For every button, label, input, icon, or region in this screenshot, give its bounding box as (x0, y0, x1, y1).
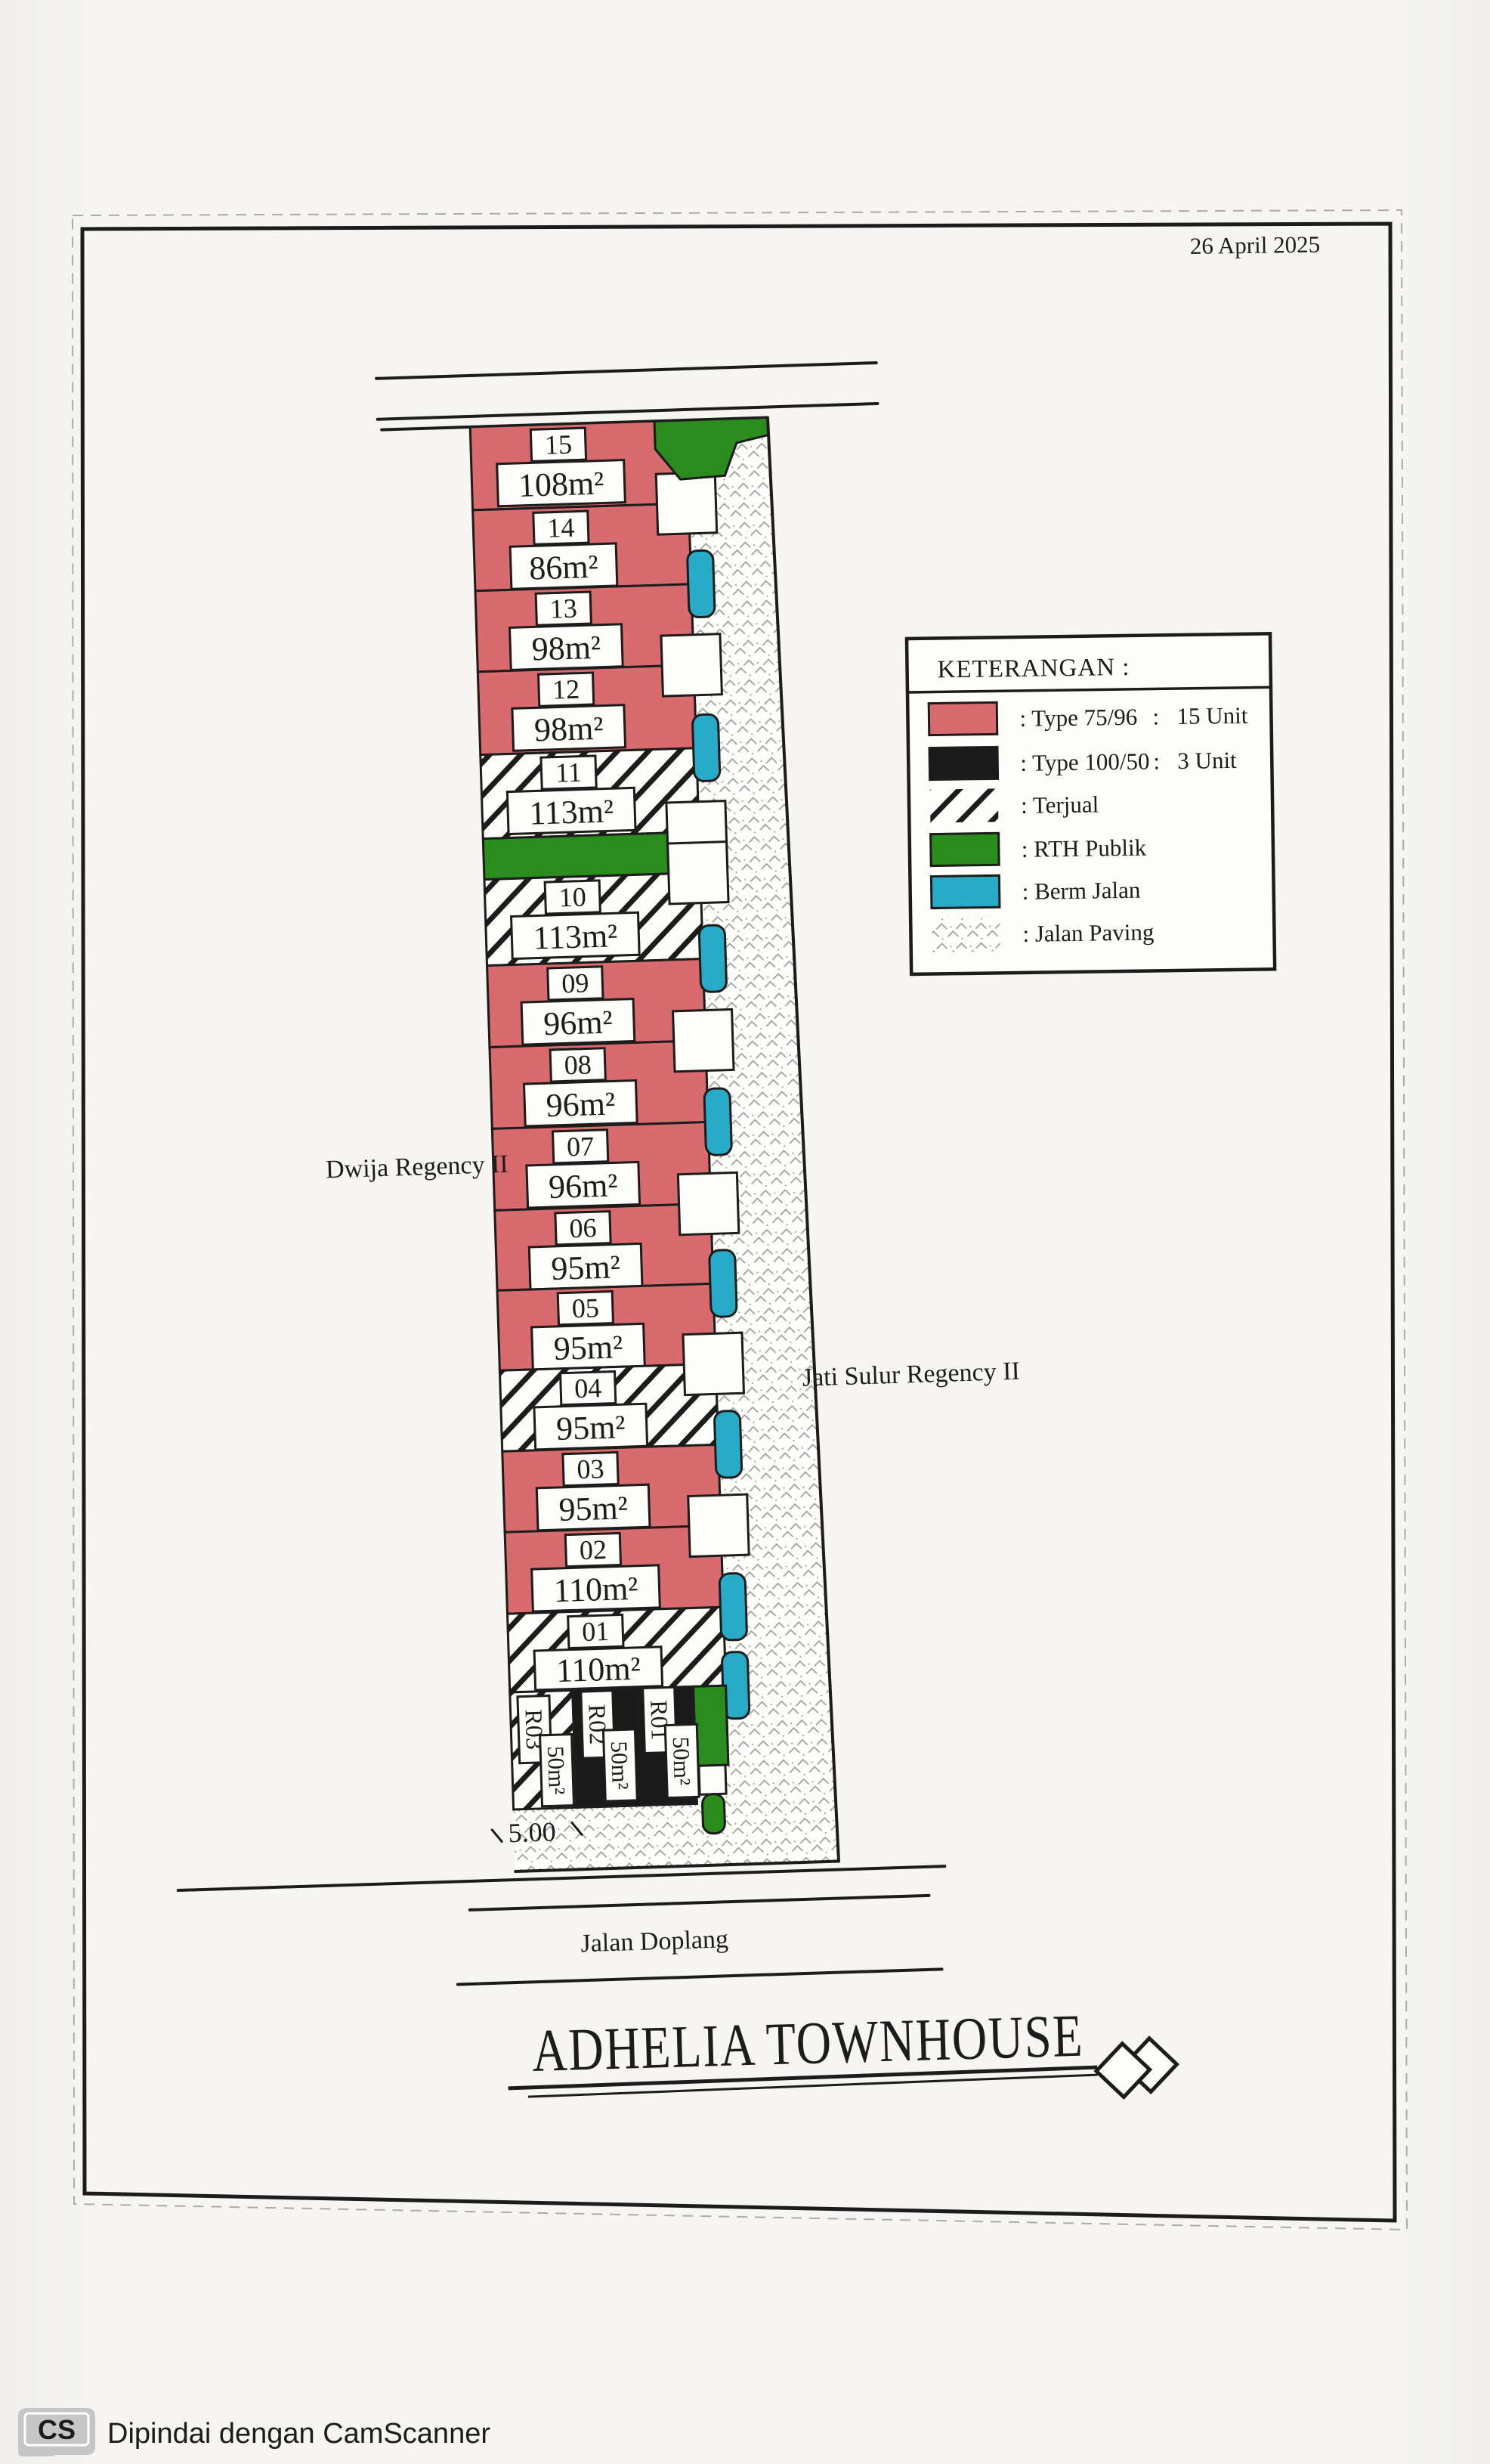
lot-area: 110m² (555, 1650, 641, 1689)
lot-area: 86m² (529, 548, 599, 587)
road-top-line-1 (376, 363, 876, 379)
berm-tab (719, 1573, 747, 1640)
driveway-gap (688, 1494, 749, 1556)
berm-tab (704, 1088, 732, 1156)
neighbor-label-right: Jati Sulur Regency II (802, 1357, 1020, 1392)
lot-number: 03 (577, 1453, 604, 1484)
cs-badge-tab (18, 2447, 56, 2456)
dimension-tick (491, 1829, 502, 1843)
legend-swatch-terjual (930, 788, 999, 822)
legend-row-berm-jalan: : Berm Jalan (931, 874, 1141, 909)
road-bottom-line-2 (470, 1896, 929, 1910)
berm-tab (699, 925, 727, 992)
lot-area: 110m² (553, 1570, 638, 1609)
neighbor-label-left: Dwija Regency II (326, 1150, 509, 1184)
driveway-gap (661, 634, 722, 696)
legend-label: : RTH Publik (1022, 834, 1147, 862)
lot-area: 96m² (543, 1003, 614, 1042)
site-plan: 15 108m² 14 86m² 13 98m² 12 98m² (131, 359, 1038, 1993)
dimension-label: 5.00 (508, 1816, 556, 1848)
lot-number: 11 (555, 757, 583, 788)
road-bottom-line-3 (458, 1969, 942, 1984)
cs-badge-label: CS (38, 2414, 76, 2445)
lot-number: 07 (567, 1131, 595, 1162)
berm-tab (709, 1249, 737, 1317)
date-label: 26 April 2025 (1190, 231, 1321, 259)
lot-number: 12 (552, 674, 580, 705)
lot-area: 108m² (518, 464, 604, 504)
berm-tab (692, 714, 720, 782)
legend-swatch-rth-publik (931, 833, 1000, 865)
lot-number: 13 (549, 593, 577, 624)
lot-area: 95m² (555, 1408, 626, 1447)
lot-number: 09 (561, 967, 589, 998)
legend-colon: : (1153, 748, 1160, 774)
legend: KETERANGAN : : Type 75/96 : 15 Unit : Ty… (907, 633, 1275, 974)
lot-area: 95m² (551, 1248, 621, 1287)
lot-number: 04 (574, 1373, 602, 1404)
lot-area: 98m² (531, 629, 601, 668)
legend-label: : Terjual (1021, 791, 1099, 818)
camscanner-watermark: CS Dipindai dengan CamScanner (18, 2408, 490, 2456)
lot-band-01-sold: 01 110m² (508, 1607, 726, 1692)
legend-label: : Berm Jalan (1022, 877, 1141, 905)
lot-number: 10 (558, 881, 586, 912)
rth-bottom-box (699, 1765, 726, 1794)
legend-swatch-berm-jalan (931, 875, 1000, 908)
legend-count: 15 Unit (1176, 702, 1248, 729)
site-plan-drawing: 26 April 2025 15 108m² 14 86m² 13 (0, 0, 1490, 2464)
legend-count: 3 Unit (1177, 747, 1237, 774)
lot-area: 96m² (546, 1085, 616, 1124)
lot-area: 98m² (533, 710, 604, 749)
legend-colon: : (1152, 703, 1159, 729)
road-top-line-2 (378, 404, 878, 419)
legend-swatch-type-75-96 (929, 702, 997, 735)
scanned-site-plan-page: 26 April 2025 15 108m² 14 86m² 13 (0, 0, 1490, 2464)
lot-area: 95m² (558, 1489, 629, 1528)
driveway-gap (683, 1333, 743, 1395)
driveway-gap (668, 842, 728, 904)
legend-label: : Type 100/50 (1020, 748, 1150, 776)
lot-number: 06 (569, 1212, 597, 1243)
lot-number: 05 (571, 1292, 599, 1323)
driveway-gap (678, 1172, 738, 1234)
driveway-gap (673, 1009, 734, 1071)
driveway-gap (656, 472, 716, 534)
lot-area: 50m² (543, 1745, 570, 1794)
lot-number: 01 (582, 1616, 610, 1647)
lot-number: 02 (579, 1534, 607, 1565)
lot-area: 113m² (529, 792, 614, 831)
street-label-bottom: Jalan Doplang (580, 1925, 729, 1958)
legend-label: : Type 75/96 (1019, 704, 1137, 732)
lot-number: 14 (547, 512, 575, 543)
lot-area: 50m² (668, 1736, 696, 1785)
legend-swatch-jalan-paving (932, 916, 1000, 952)
legend-swatch-type-100-50 (929, 747, 998, 779)
lot-area: 50m² (606, 1741, 634, 1790)
watermark-text: Dipindai dengan CamScanner (107, 2418, 490, 2450)
legend-title: KETERANGAN : (937, 654, 1130, 684)
title-block: ADHELIA TOWNHOUSE (506, 2000, 1178, 2114)
lot-number: 08 (564, 1049, 592, 1080)
lot-area: 95m² (553, 1328, 623, 1367)
lot-area: 113m² (533, 917, 618, 956)
lot-number: 15 (544, 429, 572, 460)
legend-label: : Jalan Paving (1022, 918, 1154, 946)
legend-row-rth-publik: : RTH Publik (931, 831, 1147, 866)
berm-tab (687, 550, 715, 618)
berm-tab (714, 1410, 742, 1478)
rth-bottom-tab (702, 1794, 725, 1834)
lot-area: 96m² (548, 1166, 618, 1206)
